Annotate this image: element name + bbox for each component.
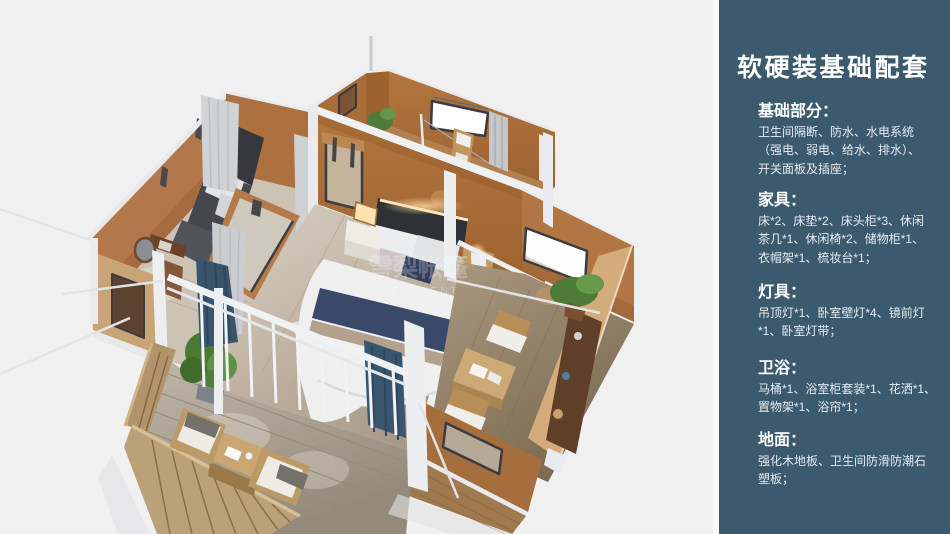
svg-text:XUELI TENT: XUELI TENT bbox=[372, 286, 460, 297]
svg-text:雪梨帐篷: 雪梨帐篷 bbox=[368, 253, 469, 282]
